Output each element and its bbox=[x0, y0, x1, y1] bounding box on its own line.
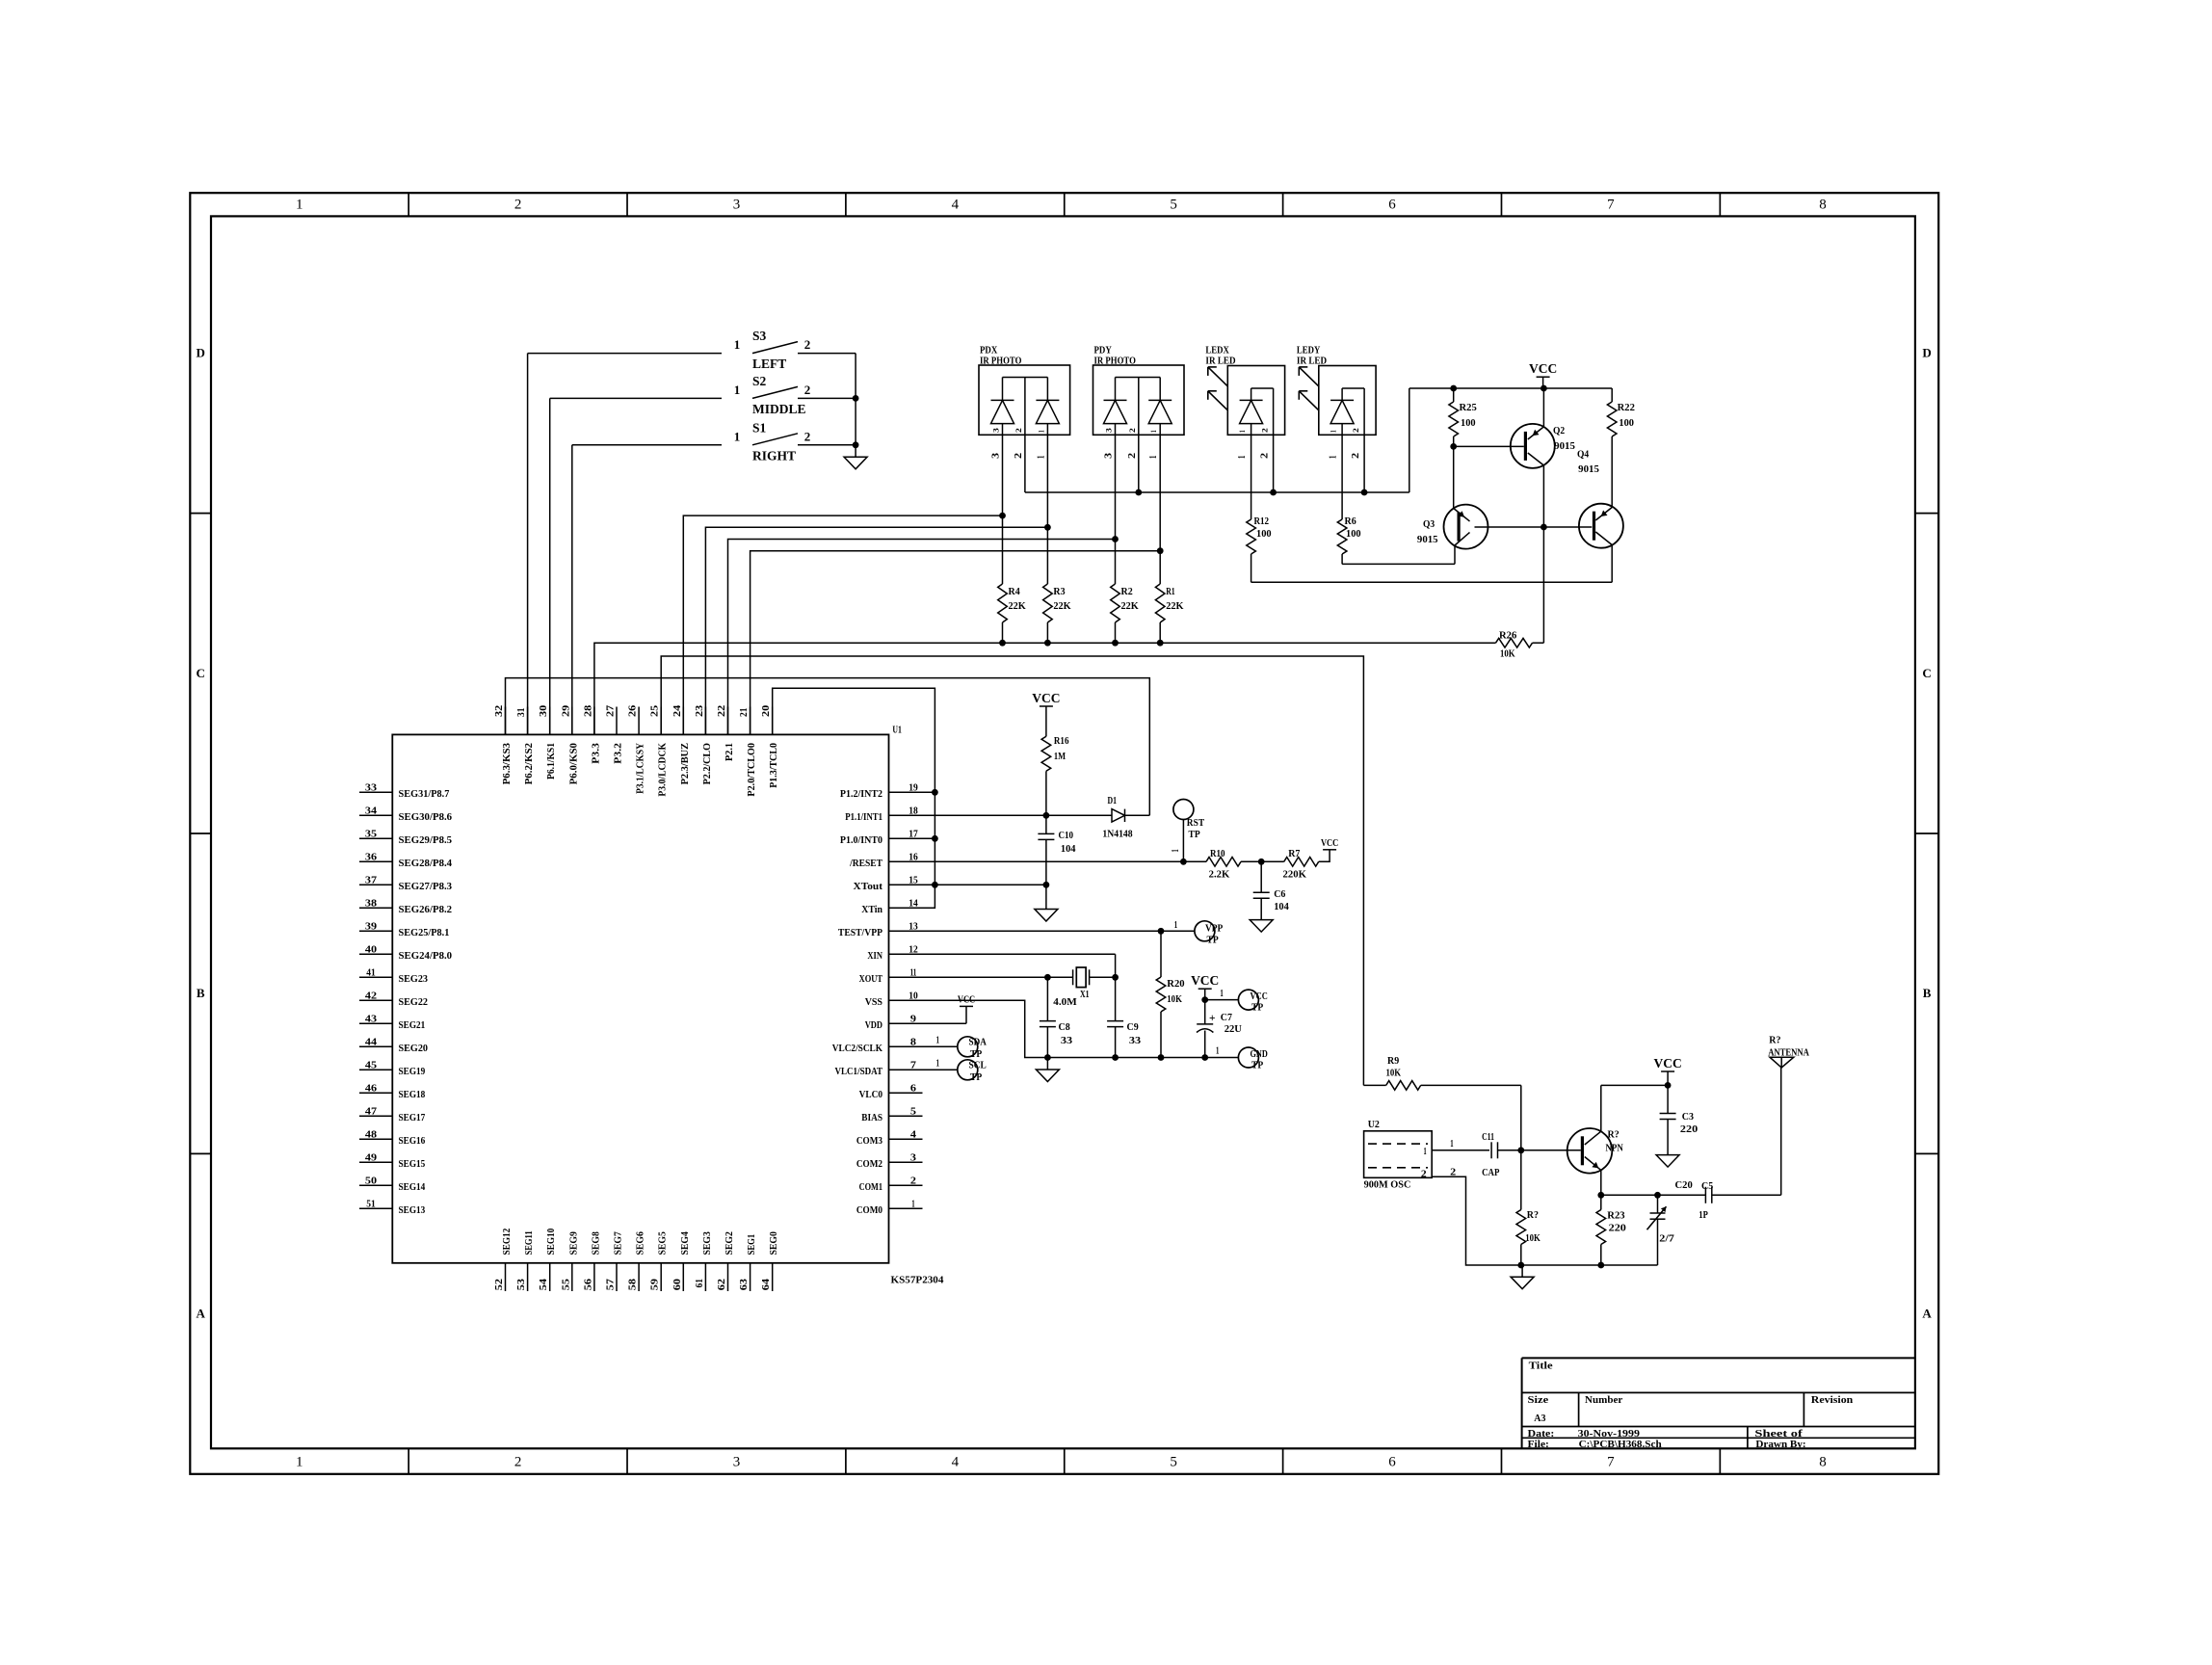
svg-text:C6: C6 bbox=[1274, 888, 1286, 900]
svg-text:57: 57 bbox=[605, 1278, 617, 1290]
svg-text:4.0M: 4.0M bbox=[1053, 996, 1076, 1008]
svg-text:2: 2 bbox=[804, 383, 811, 397]
svg-text:U1: U1 bbox=[892, 725, 902, 736]
svg-text:31: 31 bbox=[515, 708, 527, 718]
svg-text:3: 3 bbox=[1103, 452, 1115, 459]
svg-text:VCC: VCC bbox=[1191, 973, 1219, 988]
svg-text:40: 40 bbox=[365, 943, 377, 955]
svg-text:Drawn By:: Drawn By: bbox=[1755, 1439, 1805, 1450]
svg-text:S3: S3 bbox=[752, 329, 767, 343]
svg-text:10: 10 bbox=[908, 990, 918, 1001]
svg-text:61: 61 bbox=[694, 1279, 705, 1288]
svg-text:2.2K: 2.2K bbox=[1209, 869, 1230, 881]
svg-text:P3.2: P3.2 bbox=[613, 743, 624, 764]
svg-text:XOUT: XOUT bbox=[859, 973, 883, 985]
svg-text:16: 16 bbox=[908, 851, 918, 862]
svg-text:18: 18 bbox=[908, 805, 918, 816]
svg-text:P6.2/KS2: P6.2/KS2 bbox=[523, 743, 535, 784]
svg-text:COM1: COM1 bbox=[859, 1181, 882, 1193]
svg-text:P1.3/TCL0: P1.3/TCL0 bbox=[768, 743, 779, 788]
svg-text:100: 100 bbox=[1256, 528, 1272, 540]
svg-text:D: D bbox=[196, 345, 204, 359]
svg-text:C10: C10 bbox=[1059, 830, 1074, 841]
svg-text:5: 5 bbox=[1170, 198, 1177, 213]
svg-text:SDA: SDA bbox=[969, 1036, 987, 1047]
svg-text:P1.1/INT1: P1.1/INT1 bbox=[845, 811, 882, 823]
svg-text:TP: TP bbox=[970, 1048, 983, 1060]
svg-text:SCL: SCL bbox=[969, 1059, 987, 1070]
svg-text:X1: X1 bbox=[1080, 989, 1090, 1000]
svg-text:2: 2 bbox=[804, 337, 811, 352]
svg-text:VSS: VSS bbox=[865, 996, 882, 1008]
svg-text:1: 1 bbox=[1328, 456, 1339, 459]
svg-text:XIN: XIN bbox=[867, 950, 882, 962]
svg-text:BIAS: BIAS bbox=[861, 1112, 882, 1123]
svg-text:R23: R23 bbox=[1607, 1209, 1625, 1221]
svg-text:1: 1 bbox=[1236, 456, 1248, 459]
svg-text:SEG18: SEG18 bbox=[399, 1089, 426, 1100]
svg-text:LEFT: LEFT bbox=[752, 357, 786, 371]
svg-text:A3: A3 bbox=[1534, 1413, 1546, 1424]
svg-text:56: 56 bbox=[582, 1278, 593, 1290]
svg-text:VDD: VDD bbox=[865, 1019, 882, 1031]
svg-text:4: 4 bbox=[910, 1128, 917, 1140]
svg-text:17: 17 bbox=[908, 828, 918, 839]
svg-text:9015: 9015 bbox=[1578, 463, 1599, 475]
svg-text:1: 1 bbox=[1036, 430, 1045, 433]
svg-text:SEG13: SEG13 bbox=[399, 1204, 426, 1216]
svg-text:NPN: NPN bbox=[1606, 1143, 1623, 1154]
svg-text:30: 30 bbox=[538, 705, 549, 717]
svg-text:SEG11: SEG11 bbox=[523, 1230, 535, 1255]
svg-text:VCC: VCC bbox=[1321, 837, 1338, 849]
svg-text:IR PHOTO: IR PHOTO bbox=[980, 356, 1021, 367]
svg-text:4: 4 bbox=[952, 198, 960, 213]
svg-text:30-Nov-1999: 30-Nov-1999 bbox=[1578, 1428, 1641, 1440]
svg-text:COM2: COM2 bbox=[856, 1158, 882, 1170]
svg-text:VCC: VCC bbox=[1032, 691, 1060, 705]
svg-text:63: 63 bbox=[738, 1278, 750, 1290]
svg-text:R?: R? bbox=[1527, 1209, 1539, 1221]
svg-text:27: 27 bbox=[605, 704, 617, 717]
svg-text:1P: 1P bbox=[1698, 1209, 1708, 1221]
svg-text:44: 44 bbox=[365, 1036, 378, 1047]
svg-text:+: + bbox=[1209, 1013, 1216, 1024]
svg-text:IR LED: IR LED bbox=[1297, 356, 1327, 367]
svg-text:SEG6: SEG6 bbox=[635, 1231, 646, 1255]
svg-text:64: 64 bbox=[760, 1278, 772, 1290]
svg-text:P3.3: P3.3 bbox=[590, 742, 601, 763]
svg-text:SEG20: SEG20 bbox=[399, 1043, 429, 1054]
svg-text:36: 36 bbox=[365, 851, 378, 862]
svg-text:SEG24/P8.0: SEG24/P8.0 bbox=[399, 950, 453, 962]
svg-text:SEG9: SEG9 bbox=[567, 1231, 579, 1255]
svg-text:C20: C20 bbox=[1675, 1179, 1693, 1191]
svg-text:C: C bbox=[1922, 666, 1931, 680]
svg-text:6: 6 bbox=[1388, 198, 1396, 213]
svg-text:11: 11 bbox=[910, 966, 917, 978]
svg-text:35: 35 bbox=[365, 828, 377, 839]
svg-text:1: 1 bbox=[734, 337, 741, 352]
svg-text:R9: R9 bbox=[1387, 1055, 1400, 1067]
svg-text:6: 6 bbox=[910, 1082, 917, 1094]
svg-text:220: 220 bbox=[1609, 1223, 1626, 1234]
svg-text:Revision: Revision bbox=[1811, 1394, 1853, 1406]
svg-text:VLC2/SCLK: VLC2/SCLK bbox=[832, 1043, 883, 1054]
svg-text:1: 1 bbox=[296, 1455, 303, 1470]
svg-text:Sheet of: Sheet of bbox=[1754, 1428, 1803, 1440]
svg-text:C: C bbox=[196, 666, 204, 680]
svg-text:VCC: VCC bbox=[1653, 1056, 1681, 1070]
svg-text:R16: R16 bbox=[1054, 735, 1069, 747]
svg-text:R26: R26 bbox=[1499, 630, 1517, 642]
svg-text:KS57P2304: KS57P2304 bbox=[891, 1275, 945, 1286]
svg-text:1: 1 bbox=[1035, 456, 1046, 459]
svg-text:SEG14: SEG14 bbox=[399, 1181, 426, 1193]
svg-text:28: 28 bbox=[582, 704, 593, 717]
svg-text:P2.2/CLO: P2.2/CLO bbox=[701, 743, 713, 784]
svg-text:1: 1 bbox=[936, 1034, 939, 1045]
svg-text:2: 2 bbox=[514, 198, 522, 213]
svg-text:XTin: XTin bbox=[861, 904, 882, 915]
svg-text:100: 100 bbox=[1619, 417, 1634, 429]
svg-text:SEG7: SEG7 bbox=[613, 1231, 624, 1255]
svg-text:SEG27/P8.3: SEG27/P8.3 bbox=[399, 881, 453, 892]
svg-text:2: 2 bbox=[1350, 453, 1361, 459]
svg-text:VCC: VCC bbox=[1529, 361, 1557, 376]
svg-text:VLC1/SDAT: VLC1/SDAT bbox=[835, 1066, 883, 1077]
svg-text:RST: RST bbox=[1187, 817, 1205, 829]
svg-text:P1.2/INT2: P1.2/INT2 bbox=[840, 788, 882, 800]
svg-text:7: 7 bbox=[1607, 198, 1615, 213]
svg-text:24: 24 bbox=[671, 704, 683, 717]
svg-text:1M: 1M bbox=[1054, 751, 1066, 762]
svg-text:RIGHT: RIGHT bbox=[752, 448, 796, 462]
svg-text:S2: S2 bbox=[752, 374, 767, 388]
svg-text:SEG29/P8.5: SEG29/P8.5 bbox=[399, 834, 453, 846]
svg-text:SEG23: SEG23 bbox=[399, 973, 429, 985]
svg-text:3: 3 bbox=[733, 198, 741, 213]
svg-text:26: 26 bbox=[627, 704, 639, 717]
svg-text:100: 100 bbox=[1461, 417, 1476, 429]
svg-text:12: 12 bbox=[908, 943, 918, 955]
svg-text:Q2: Q2 bbox=[1553, 425, 1565, 436]
svg-text:2: 2 bbox=[804, 429, 811, 443]
svg-text:23: 23 bbox=[694, 704, 705, 717]
svg-text:900M OSC: 900M OSC bbox=[1364, 1178, 1411, 1190]
svg-text:50: 50 bbox=[365, 1175, 377, 1186]
svg-text:8: 8 bbox=[1819, 198, 1827, 213]
svg-text:22K: 22K bbox=[1009, 600, 1027, 612]
svg-text:9015: 9015 bbox=[1417, 534, 1438, 545]
svg-text:1: 1 bbox=[734, 429, 741, 443]
svg-text:P2.1: P2.1 bbox=[724, 743, 735, 761]
svg-text:2: 2 bbox=[1127, 428, 1137, 433]
svg-text:10K: 10K bbox=[1386, 1068, 1402, 1079]
svg-text:2: 2 bbox=[1014, 428, 1023, 433]
svg-text:6: 6 bbox=[1388, 1455, 1396, 1470]
svg-text:P6.3/KS3: P6.3/KS3 bbox=[501, 742, 513, 784]
svg-text:22K: 22K bbox=[1166, 600, 1184, 612]
svg-text:1: 1 bbox=[1216, 1045, 1219, 1057]
svg-text:TP: TP bbox=[1251, 1060, 1264, 1071]
svg-text:1: 1 bbox=[1171, 849, 1181, 852]
svg-text:1: 1 bbox=[1450, 1138, 1453, 1150]
svg-text:2: 2 bbox=[1421, 1169, 1427, 1179]
svg-text:/RESET: /RESET bbox=[849, 858, 882, 869]
svg-text:62: 62 bbox=[716, 1279, 727, 1290]
svg-text:14: 14 bbox=[908, 897, 918, 909]
svg-text:R22: R22 bbox=[1618, 402, 1635, 413]
svg-text:R4: R4 bbox=[1009, 586, 1021, 597]
svg-text:SEG16: SEG16 bbox=[399, 1135, 426, 1147]
svg-text:52: 52 bbox=[493, 1279, 505, 1290]
svg-text:1: 1 bbox=[734, 383, 741, 397]
svg-text:P6.1/KS1: P6.1/KS1 bbox=[545, 743, 557, 780]
svg-text:SEG31/P8.7: SEG31/P8.7 bbox=[399, 788, 450, 800]
svg-text:22K: 22K bbox=[1053, 600, 1071, 612]
svg-text:29: 29 bbox=[560, 704, 571, 717]
svg-text:GND: GND bbox=[1251, 1048, 1268, 1060]
svg-text:Number: Number bbox=[1585, 1394, 1623, 1406]
svg-text:SEG3: SEG3 bbox=[701, 1231, 713, 1255]
svg-text:R12: R12 bbox=[1254, 515, 1270, 527]
svg-text:R1: R1 bbox=[1166, 586, 1175, 597]
svg-text:C11: C11 bbox=[1482, 1131, 1494, 1143]
svg-text:1N4148: 1N4148 bbox=[1102, 829, 1133, 840]
svg-text:R7: R7 bbox=[1288, 848, 1301, 859]
svg-text:10K: 10K bbox=[1500, 648, 1515, 660]
svg-text:D: D bbox=[1922, 345, 1931, 359]
svg-text:10K: 10K bbox=[1167, 993, 1182, 1005]
svg-text:2: 2 bbox=[514, 1455, 522, 1470]
svg-text:2: 2 bbox=[1013, 453, 1024, 459]
svg-text:B: B bbox=[197, 986, 205, 1000]
svg-text:4: 4 bbox=[952, 1455, 960, 1470]
svg-text:1: 1 bbox=[1174, 919, 1177, 931]
svg-text:34: 34 bbox=[365, 805, 378, 816]
svg-text:Title: Title bbox=[1529, 1361, 1553, 1372]
svg-text:2/7: 2/7 bbox=[1659, 1233, 1674, 1245]
svg-text:VCC: VCC bbox=[958, 993, 975, 1005]
svg-text:41: 41 bbox=[366, 966, 376, 978]
svg-text:47: 47 bbox=[365, 1105, 378, 1117]
svg-text:Q3: Q3 bbox=[1423, 518, 1435, 530]
svg-text:Size: Size bbox=[1528, 1394, 1549, 1406]
svg-text:42: 42 bbox=[365, 990, 377, 1001]
svg-text:1: 1 bbox=[1148, 430, 1158, 433]
svg-text:C9: C9 bbox=[1127, 1021, 1140, 1033]
svg-text:COM0: COM0 bbox=[856, 1204, 882, 1216]
svg-text:15: 15 bbox=[908, 874, 918, 885]
svg-text:R?: R? bbox=[1769, 1035, 1780, 1046]
svg-text:22U: 22U bbox=[1224, 1023, 1242, 1035]
svg-text:58: 58 bbox=[627, 1278, 639, 1290]
svg-text:SEG0: SEG0 bbox=[768, 1231, 779, 1255]
svg-text:SEG17: SEG17 bbox=[399, 1112, 426, 1123]
svg-text:2: 2 bbox=[1259, 453, 1271, 459]
svg-text:R3: R3 bbox=[1053, 586, 1066, 597]
svg-text:File:: File: bbox=[1528, 1439, 1549, 1450]
svg-text:59: 59 bbox=[649, 1278, 661, 1290]
svg-text:55: 55 bbox=[560, 1279, 571, 1290]
svg-text:20: 20 bbox=[760, 705, 772, 717]
svg-text:SEG22: SEG22 bbox=[399, 996, 429, 1008]
svg-text:3: 3 bbox=[990, 452, 1002, 459]
svg-text:R6: R6 bbox=[1345, 515, 1357, 527]
svg-text:104: 104 bbox=[1061, 843, 1076, 855]
svg-text:R2: R2 bbox=[1121, 586, 1133, 597]
svg-text:32: 32 bbox=[493, 705, 505, 717]
svg-text:5: 5 bbox=[1170, 1455, 1177, 1470]
svg-text:1: 1 bbox=[1424, 1147, 1427, 1157]
svg-text:33: 33 bbox=[365, 781, 378, 793]
svg-text:SEG10: SEG10 bbox=[545, 1229, 557, 1255]
svg-text:R10: R10 bbox=[1210, 848, 1225, 859]
svg-text:IR LED: IR LED bbox=[1205, 356, 1235, 367]
svg-text:VCC: VCC bbox=[1251, 991, 1268, 1002]
svg-text:46: 46 bbox=[365, 1082, 378, 1094]
svg-text:P2.3/BUZ: P2.3/BUZ bbox=[679, 743, 691, 784]
svg-text:C7: C7 bbox=[1221, 1012, 1233, 1023]
svg-text:SEG26/P8.2: SEG26/P8.2 bbox=[399, 904, 453, 915]
svg-text:21: 21 bbox=[738, 708, 750, 718]
svg-text:2: 2 bbox=[1351, 428, 1360, 433]
svg-text:33: 33 bbox=[1061, 1035, 1073, 1046]
svg-text:45: 45 bbox=[365, 1059, 377, 1070]
svg-text:7: 7 bbox=[910, 1059, 917, 1070]
svg-text:TP: TP bbox=[1207, 935, 1220, 946]
svg-text:VPP: VPP bbox=[1205, 923, 1224, 935]
svg-text:1: 1 bbox=[911, 1198, 914, 1209]
svg-text:C:\PCB\H368.Sch: C:\PCB\H368.Sch bbox=[1579, 1439, 1662, 1450]
svg-text:Date:: Date: bbox=[1528, 1428, 1555, 1440]
svg-text:SEG8: SEG8 bbox=[590, 1231, 601, 1255]
svg-text:D1: D1 bbox=[1108, 795, 1118, 806]
svg-text:P2.0/TCLO0: P2.0/TCLO0 bbox=[746, 743, 757, 797]
svg-text:220K: 220K bbox=[1283, 869, 1307, 881]
svg-text:22K: 22K bbox=[1121, 600, 1140, 612]
svg-text:13: 13 bbox=[908, 920, 918, 932]
svg-text:9015: 9015 bbox=[1554, 440, 1575, 452]
svg-text:P6.0/KS0: P6.0/KS0 bbox=[567, 743, 579, 784]
svg-text:3: 3 bbox=[1104, 428, 1114, 433]
svg-text:7: 7 bbox=[1607, 1455, 1615, 1470]
svg-text:R25: R25 bbox=[1460, 402, 1477, 413]
svg-text:TP: TP bbox=[970, 1071, 983, 1083]
svg-text:B: B bbox=[1923, 986, 1932, 1000]
svg-text:A: A bbox=[196, 1307, 205, 1321]
svg-text:R?: R? bbox=[1608, 1129, 1619, 1141]
svg-text:TP: TP bbox=[1251, 1002, 1264, 1014]
svg-text:SEG21: SEG21 bbox=[399, 1019, 426, 1031]
svg-text:5: 5 bbox=[910, 1105, 916, 1117]
svg-text:SEG28/P8.4: SEG28/P8.4 bbox=[399, 858, 453, 869]
svg-text:8: 8 bbox=[910, 1036, 917, 1047]
svg-text:SEG1: SEG1 bbox=[746, 1234, 757, 1255]
svg-text:SEG19: SEG19 bbox=[399, 1066, 426, 1077]
svg-text:SEG12: SEG12 bbox=[501, 1229, 513, 1255]
svg-text:10K: 10K bbox=[1525, 1232, 1540, 1244]
svg-text:60: 60 bbox=[671, 1279, 683, 1290]
svg-text:43: 43 bbox=[365, 1013, 378, 1024]
svg-text:3: 3 bbox=[733, 1455, 741, 1470]
svg-text:2: 2 bbox=[1126, 453, 1138, 459]
svg-text:54: 54 bbox=[538, 1278, 549, 1290]
svg-text:3: 3 bbox=[910, 1151, 917, 1163]
svg-text:VLC0: VLC0 bbox=[859, 1089, 882, 1100]
svg-text:220: 220 bbox=[1680, 1123, 1698, 1135]
svg-text:1: 1 bbox=[296, 198, 303, 213]
svg-text:53: 53 bbox=[515, 1278, 527, 1290]
svg-text:U2: U2 bbox=[1368, 1119, 1380, 1130]
svg-text:1: 1 bbox=[936, 1057, 939, 1069]
svg-text:XTout: XTout bbox=[854, 881, 883, 892]
svg-text:CAP: CAP bbox=[1482, 1167, 1500, 1178]
svg-text:19: 19 bbox=[908, 781, 918, 793]
svg-text:9: 9 bbox=[910, 1013, 917, 1024]
svg-text:IR PHOTO: IR PHOTO bbox=[1094, 356, 1136, 367]
svg-text:Q4: Q4 bbox=[1577, 449, 1590, 461]
svg-text:2: 2 bbox=[910, 1175, 916, 1186]
svg-text:ANTENNA: ANTENNA bbox=[1768, 1046, 1809, 1058]
svg-text:SEG4: SEG4 bbox=[679, 1231, 691, 1255]
svg-text:1: 1 bbox=[1329, 430, 1338, 433]
svg-text:S1: S1 bbox=[752, 420, 767, 435]
svg-text:TP: TP bbox=[1189, 829, 1201, 840]
svg-text:SEG15: SEG15 bbox=[399, 1158, 426, 1170]
svg-text:3: 3 bbox=[991, 428, 1001, 433]
svg-text:8: 8 bbox=[1819, 1455, 1827, 1470]
svg-text:C8: C8 bbox=[1059, 1021, 1071, 1033]
svg-text:22: 22 bbox=[716, 705, 727, 717]
svg-text:100: 100 bbox=[1346, 528, 1361, 540]
svg-text:1: 1 bbox=[1237, 430, 1247, 433]
svg-text:48: 48 bbox=[365, 1128, 378, 1140]
svg-text:104: 104 bbox=[1274, 901, 1289, 912]
svg-text:SEG25/P8.1: SEG25/P8.1 bbox=[399, 927, 450, 938]
svg-text:37: 37 bbox=[365, 874, 378, 885]
svg-text:C3: C3 bbox=[1682, 1111, 1695, 1123]
svg-text:SEG2: SEG2 bbox=[724, 1231, 735, 1255]
svg-text:1: 1 bbox=[1147, 456, 1159, 459]
svg-text:R20: R20 bbox=[1167, 978, 1184, 990]
svg-text:SEG30/P8.6: SEG30/P8.6 bbox=[399, 811, 453, 823]
svg-text:49: 49 bbox=[365, 1151, 378, 1163]
svg-text:33: 33 bbox=[1129, 1035, 1142, 1046]
svg-text:P3.1/LCKSY: P3.1/LCKSY bbox=[635, 743, 646, 794]
svg-text:P3.0/LCDCK: P3.0/LCDCK bbox=[657, 742, 669, 796]
svg-text:39: 39 bbox=[365, 920, 378, 932]
svg-text:A: A bbox=[1922, 1307, 1932, 1321]
svg-text:38: 38 bbox=[365, 897, 378, 909]
svg-text:25: 25 bbox=[649, 705, 661, 717]
svg-text:P1.0/INT0: P1.0/INT0 bbox=[840, 834, 882, 846]
svg-text:SEG5: SEG5 bbox=[657, 1231, 669, 1255]
svg-text:COM3: COM3 bbox=[856, 1135, 883, 1147]
svg-text:2: 2 bbox=[1260, 428, 1270, 433]
svg-text:MIDDLE: MIDDLE bbox=[752, 402, 806, 416]
svg-text:1: 1 bbox=[1220, 988, 1223, 999]
svg-text:51: 51 bbox=[366, 1198, 376, 1209]
svg-text:TEST/VPP: TEST/VPP bbox=[838, 927, 882, 938]
